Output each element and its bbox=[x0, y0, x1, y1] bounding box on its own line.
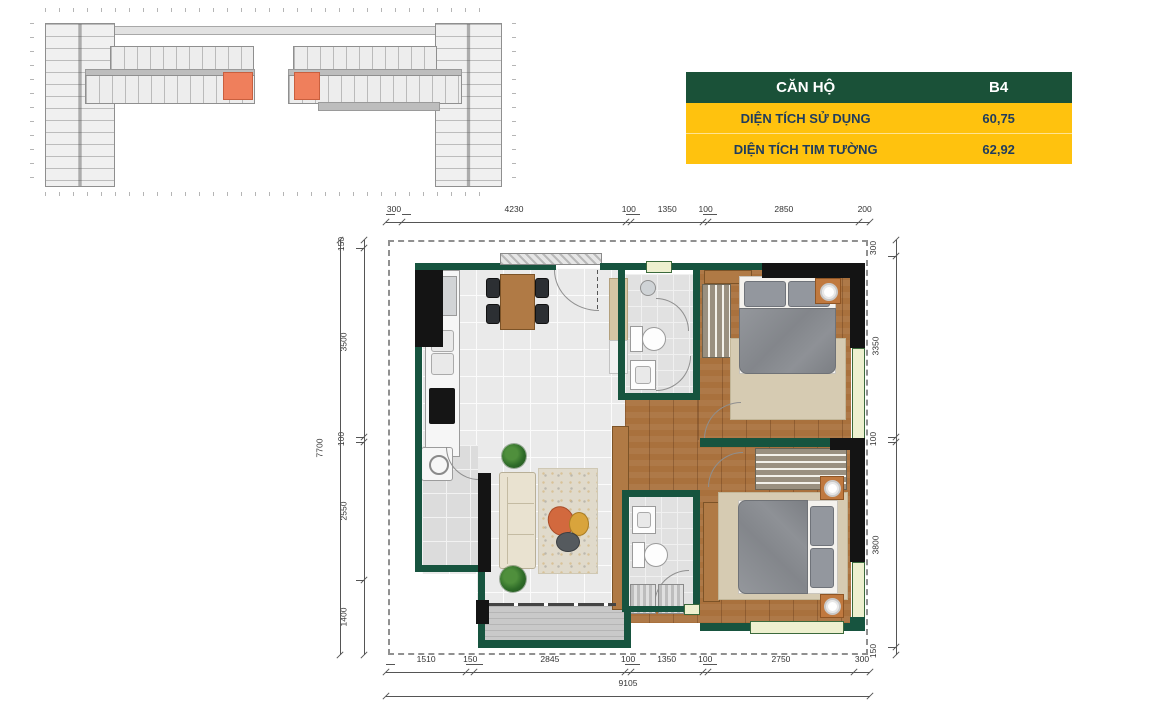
dim-value: 300 bbox=[387, 204, 401, 214]
dim-value: 100 bbox=[621, 654, 635, 664]
dim-left-total: 7700 bbox=[332, 240, 348, 655]
dim-value: 4230 bbox=[505, 204, 524, 214]
dim-value: 1510 bbox=[417, 654, 436, 664]
dim-segment: 2845 bbox=[474, 664, 625, 680]
apartment-floor-plan bbox=[388, 240, 868, 655]
dim-value: 9105 bbox=[619, 678, 638, 688]
dim-segment: 3350 bbox=[888, 256, 904, 437]
keyplan-upper-units-left bbox=[110, 46, 254, 70]
dim-value: 300 bbox=[855, 654, 869, 664]
dim-segment: 2550 bbox=[356, 442, 372, 579]
keyplan-right-wing bbox=[435, 23, 502, 187]
dim-segment: 300 bbox=[854, 664, 870, 680]
dim-value: 100 bbox=[699, 204, 713, 214]
keyplan-highlighted-unit-2 bbox=[294, 72, 320, 100]
building-overview-plan bbox=[30, 8, 520, 200]
dim-value: 150 bbox=[463, 654, 477, 664]
dim-segment: 1510 bbox=[386, 664, 466, 680]
dim-value: 2850 bbox=[774, 204, 793, 214]
dim-bottom-total: 9105 bbox=[386, 688, 870, 704]
dim-segment: 3800 bbox=[888, 442, 904, 647]
dim-right: 30033501003800150 bbox=[888, 240, 904, 655]
keyplan-grid-ticks-top bbox=[45, 8, 485, 12]
unit-boundary-dashed bbox=[388, 240, 868, 655]
dim-value: 150 bbox=[868, 644, 878, 658]
dim-value: 7700 bbox=[314, 438, 324, 457]
dim-segment: 4230 bbox=[402, 214, 626, 230]
dim-value: 300 bbox=[868, 241, 878, 255]
dim-value: 3350 bbox=[870, 337, 880, 356]
unit-info-header-row: CĂN HỘ B4 bbox=[686, 72, 1072, 103]
dim-left: 150350010025501400 bbox=[356, 240, 372, 655]
dim-segment: 1350 bbox=[631, 664, 703, 680]
dim-top: 300423010013501002850200 bbox=[386, 214, 870, 230]
dim-segment: 150 bbox=[888, 647, 904, 655]
dim-segment: 2850 bbox=[708, 214, 859, 230]
dim-segment: 1400 bbox=[356, 580, 372, 655]
dim-value: 100 bbox=[698, 654, 712, 664]
keyplan-left-wing bbox=[45, 23, 115, 187]
dim-segment: 1350 bbox=[631, 214, 703, 230]
keyplan-amenity-deck bbox=[318, 102, 440, 111]
dim-segment: 200 bbox=[859, 214, 870, 230]
dim-value: 1350 bbox=[658, 204, 677, 214]
dim-segment: 7700 bbox=[332, 240, 348, 655]
usable-area-value: 60,75 bbox=[925, 111, 1072, 126]
keyplan-upper-units-right bbox=[293, 46, 437, 70]
dim-segment: 2750 bbox=[708, 664, 854, 680]
keyplan-grid-ticks-left bbox=[30, 23, 34, 188]
dim-value: 100 bbox=[622, 204, 636, 214]
dim-value: 3800 bbox=[870, 535, 880, 554]
unit-code: B4 bbox=[925, 79, 1072, 96]
gross-area-label: DIỆN TÍCH TIM TƯỜNG bbox=[686, 142, 925, 157]
dim-value: 1350 bbox=[657, 654, 676, 664]
keyplan-grid-ticks-right bbox=[512, 23, 516, 188]
keyplan-grid-ticks-bottom bbox=[45, 192, 485, 196]
dim-value: 100 bbox=[868, 432, 878, 446]
dim-value: 2845 bbox=[540, 654, 559, 664]
dim-value: 2750 bbox=[771, 654, 790, 664]
gross-area-value: 62,92 bbox=[925, 142, 1072, 157]
dim-value: 200 bbox=[858, 204, 872, 214]
dim-segment: 3500 bbox=[356, 248, 372, 437]
gross-area-row: DIỆN TÍCH TIM TƯỜNG 62,92 bbox=[686, 133, 1072, 164]
unit-info-table: CĂN HỘ B4 DIỆN TÍCH SỬ DỤNG 60,75 DIỆN T… bbox=[686, 72, 1072, 164]
usable-area-label: DIỆN TÍCH SỬ DỤNG bbox=[686, 111, 925, 126]
keyplan-highlighted-unit-1 bbox=[223, 72, 253, 100]
dim-segment: 9105 bbox=[386, 688, 870, 704]
unit-label: CĂN HỘ bbox=[686, 79, 925, 96]
usable-area-row: DIỆN TÍCH SỬ DỤNG 60,75 bbox=[686, 103, 1072, 133]
